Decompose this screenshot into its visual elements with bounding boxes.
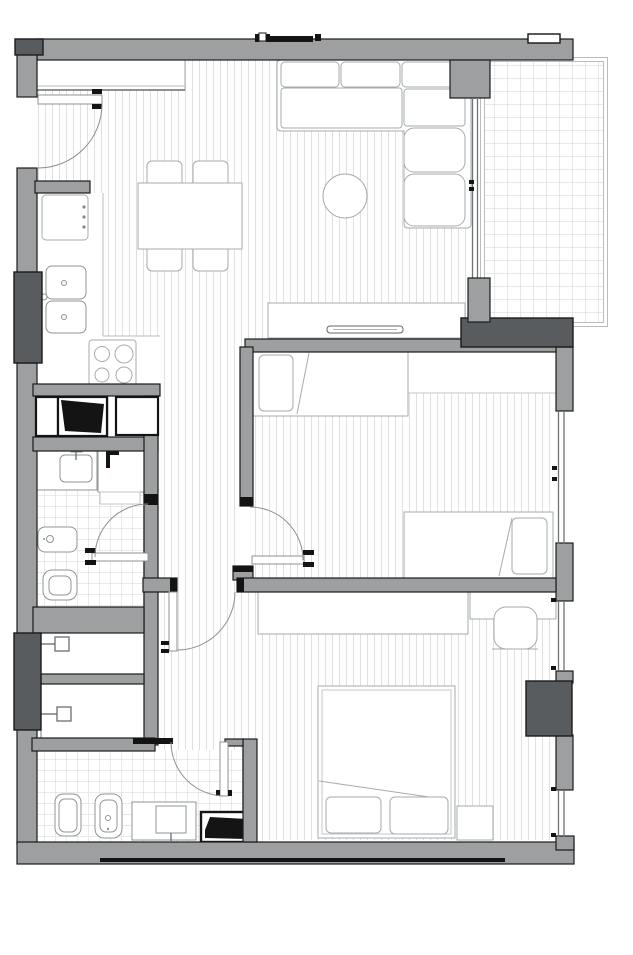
washer-knob-2: [82, 215, 85, 218]
exterior-wall-top: [37, 39, 573, 60]
bathroom2-right-wall: [243, 739, 257, 842]
bathroom2-toilet-bowl: [59, 799, 77, 832]
washing-machine: [42, 195, 88, 240]
corridor-left-wall-cap: [144, 494, 158, 505]
balcony-tile-floor: [485, 62, 603, 322]
entrance-door-jamb-top: [92, 89, 102, 94]
double-bed-pillow-2: [390, 797, 448, 834]
bedroom2-door-jamb-1: [303, 550, 314, 555]
bedroom2-door-leaf: [252, 556, 304, 564]
bathroom1-shower-unit: [98, 446, 144, 492]
top-wall-notch-2: [528, 34, 560, 43]
closet-divider-wall: [41, 674, 144, 684]
shaft-box-1: [36, 397, 58, 436]
shower-wedge-icon: [205, 817, 247, 839]
sofa-back-cushion-2: [341, 62, 400, 87]
dining-table: [138, 183, 242, 249]
column-left-lower: [14, 633, 41, 730]
floor-plan-drawing: [0, 0, 633, 950]
bathroom2-bidet-drain: [106, 816, 111, 821]
balcony: [481, 58, 608, 327]
sofa-chaise-cushion-1: [404, 128, 465, 172]
master-door-leaf: [169, 592, 177, 651]
master-window1-latch-1: [551, 598, 556, 602]
exterior-wall-right-5: [556, 836, 574, 850]
bathroom2-bidet-dot: [107, 828, 109, 830]
bedroom2-door-jamb-2: [303, 562, 314, 567]
sink2-drain: [62, 315, 67, 320]
column-left-mid: [14, 272, 42, 363]
burner-1: [95, 347, 110, 362]
bathroom2-washbasin: [156, 806, 186, 833]
sofa-chaise-cushion-2: [404, 174, 465, 226]
bathroom2-doorway-bar: [133, 738, 173, 744]
single-bed-2-pillow: [512, 518, 547, 574]
single-bed-1-pillow: [259, 355, 293, 411]
double-bed-pillow-1: [326, 797, 381, 833]
exterior-wall-right-1: [556, 347, 573, 411]
bedroom2-window-latch-2: [552, 477, 557, 481]
closet-b-fixture-icon: [57, 707, 71, 721]
entrance-door-jamb-bottom: [92, 104, 102, 109]
bathroom1-top-wall: [33, 437, 158, 451]
burner-3: [95, 368, 109, 382]
storage-closets: [37, 633, 144, 738]
service-shafts: [36, 397, 158, 436]
top-wall-tick-3: [315, 34, 321, 41]
kitchen-stub-wall: [35, 181, 90, 193]
sofa-seat: [281, 88, 402, 128]
top-wall-lintel-bar: [270, 36, 313, 42]
coffee-table: [323, 174, 367, 218]
bedroom2-window-latch-1: [552, 466, 557, 470]
master-dresser: [258, 592, 468, 634]
closet-a-fixture-icon: [55, 637, 69, 651]
bathroom1-shower-step: [100, 492, 140, 504]
living-window-latch-1: [469, 180, 474, 184]
bathroom2-door-jamb-tick-2: [228, 790, 232, 796]
bedroom-divider-wall: [237, 578, 556, 592]
exterior-wall-left-1: [17, 53, 37, 97]
bottom-wall-edge-detail: [100, 858, 505, 862]
floor-plan-page: [0, 0, 633, 950]
exterior-wall-left-3: [17, 363, 37, 634]
master-window2-latch-1: [551, 787, 556, 791]
top-wall-tick-1: [255, 34, 259, 42]
bathroom1-bidet-bowl: [49, 576, 71, 595]
master-door-jamb-tick-2: [161, 649, 169, 653]
bathroom1-door-jamb-1: [85, 548, 96, 553]
master-door-jamb-tick-1: [161, 641, 169, 645]
sofa-back-cushion-1: [281, 62, 339, 87]
master-window1-latch-2: [551, 666, 556, 670]
burner-4: [116, 367, 132, 383]
bathroom1-toilet-flush: [47, 536, 54, 543]
bathroom1-bottom-wall: [33, 607, 144, 633]
sink1-drain: [62, 281, 67, 286]
bedroom2-door-stub-cap: [233, 566, 253, 572]
living-balcony-wall-pier-bottom: [468, 278, 490, 322]
shaft-box-3: [116, 397, 158, 435]
exterior-wall-right-2: [556, 543, 573, 601]
corridor-left-wall: [144, 396, 158, 745]
master-window2-latch-2: [551, 833, 556, 837]
bathroom1-toilet-dot: [43, 538, 45, 540]
living-window-latch-2: [469, 187, 474, 191]
bathroom1-door-leaf: [92, 553, 148, 561]
bedroom2-wardrobe: [408, 348, 556, 393]
master-wardrobe-block: [526, 681, 572, 736]
shaft-wedge-icon: [61, 400, 104, 433]
desk-chair: [494, 607, 537, 649]
master-door-jamb-east: [237, 578, 244, 592]
wall-above-shafts: [33, 384, 160, 396]
burner-2: [115, 345, 133, 363]
entrance-door-leaf: [38, 95, 102, 104]
bathroom2-door-leaf: [220, 742, 228, 796]
top-wall-notch-1: [259, 33, 266, 41]
corridor-right-wall: [240, 347, 253, 506]
nightstand: [457, 806, 493, 840]
column-top-left: [15, 39, 43, 55]
washer-knob-3: [82, 225, 85, 228]
corridor-right-wall-cap: [240, 497, 253, 506]
top-wall-tick-2: [266, 34, 270, 42]
master-door-jamb-west: [170, 578, 177, 592]
washer-knob-1: [82, 205, 85, 208]
exterior-wall-right-4: [556, 735, 573, 790]
bathroom1-door-jamb-2: [85, 560, 96, 565]
living-balcony-wall-pier-top: [450, 60, 490, 98]
exterior-wall-left-2: [17, 168, 37, 273]
